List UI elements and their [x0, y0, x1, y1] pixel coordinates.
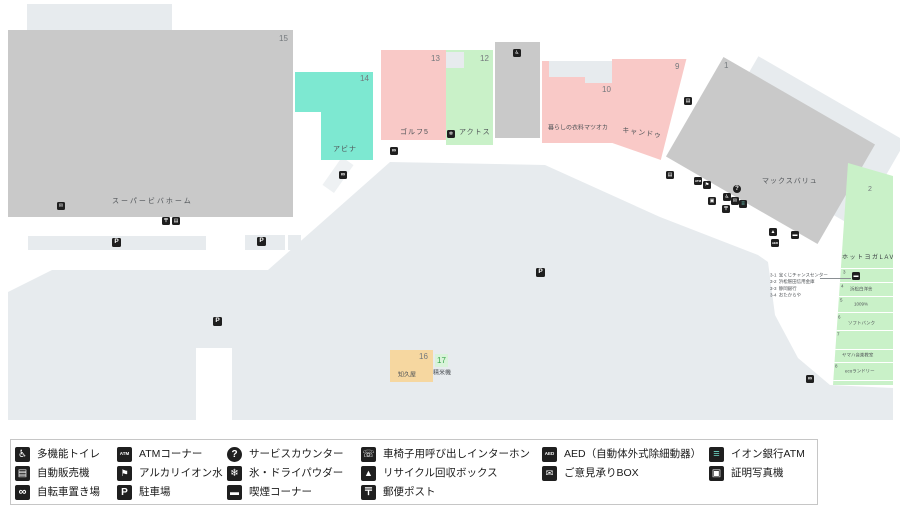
store-number: 9 [675, 63, 679, 71]
parking-icon: P [112, 238, 121, 247]
store-number: 14 [360, 75, 369, 83]
section-divider [832, 330, 893, 331]
vending-icon: ▤ [172, 217, 180, 225]
parking-icon: P [117, 485, 132, 500]
section-divider [832, 380, 893, 381]
atm-icon: ATM [694, 177, 702, 185]
legend-label: アルカリイオン水 [139, 466, 223, 481]
section-store-label: 1009% [854, 302, 868, 306]
parking-icon: P [257, 237, 266, 246]
section-store-label: 浜松白洋舎 [850, 287, 872, 291]
mall-floor-map: 15 スーパービバホーム 14 アビナ 13 ゴルフ5 12 アクトス 10 暮… [0, 0, 900, 510]
section-number: 3 [843, 270, 845, 274]
section-number: 7 [837, 332, 839, 336]
post-icon: 〒 [361, 485, 376, 500]
legend-label: ご意見承りBOX [564, 466, 639, 481]
parking-icon: P [536, 268, 545, 277]
notch-matsuoka-2 [585, 61, 612, 83]
store-number: 15 [279, 35, 288, 43]
store-label-matsuoka: 暮らしの衣料マツオカ [548, 125, 608, 131]
suggestion-box-icon: ✉ [731, 197, 739, 205]
tenant-number: 3-2 [770, 279, 776, 286]
ice-icon: ❄ [447, 130, 455, 138]
legend-label: 喫煙コーナー [249, 485, 312, 500]
store-number: 1 [724, 62, 728, 70]
section-store-label: ヤマハ音楽教室 [842, 353, 873, 357]
bicycle-icon: ∞ [390, 147, 398, 155]
bicycle-icon: ∞ [15, 485, 30, 500]
smoking-icon: ▬ [791, 231, 799, 239]
tenant-number: 3-1 [770, 272, 776, 279]
tenant-name: 宝くじチャンスセンター [779, 272, 828, 279]
legend-label: 自転車置き場 [37, 485, 100, 500]
legend-label: 車椅子用呼び出しインターホン [383, 447, 530, 462]
aeon-atm-icon: ≡ [739, 200, 747, 208]
store-label-actos: アクトス [459, 129, 491, 136]
tenant-list-item: 3-2浜松磐田信用金庫 [770, 279, 828, 286]
store-viva-home [8, 30, 293, 217]
store-number: 16 [419, 353, 428, 361]
parking-icon: P [213, 317, 222, 326]
tenant-list-item: 3-1宝くじチャンスセンター [770, 272, 828, 279]
aed-icon: AED [542, 447, 557, 462]
notch-actos [446, 52, 464, 68]
aeon-atm-icon: ≡ [709, 447, 724, 462]
post-icon: 〒 [722, 205, 730, 213]
area-top-left [27, 4, 172, 30]
toilet-icon: ♿ [15, 447, 30, 462]
alkaline-water-icon: ⚑ [117, 466, 132, 481]
store-label-seimaiki: 精米機 [433, 370, 451, 376]
intercom-icon: ☏ [361, 447, 376, 462]
store-seimaiki: 17 [435, 354, 448, 367]
tenant-name: おたからや [779, 292, 801, 299]
parking-notch [196, 348, 232, 420]
post-icon: 〒 [162, 217, 170, 225]
toilet-icon: ♿ [513, 49, 521, 57]
store-number: 17 [437, 356, 446, 365]
tenant-name: 浜松磐田信用金庫 [779, 279, 815, 286]
store-number: 10 [602, 86, 611, 94]
lottery-icon: ▬ [852, 272, 860, 280]
legend-label: 多機能トイレ [37, 447, 100, 462]
legend-label: AED（自動体外式除細動器） [564, 447, 701, 462]
crosswalk [323, 157, 354, 193]
notch-matsuoka-1 [549, 61, 585, 77]
suggestion-box-icon: ✉ [542, 466, 557, 481]
section-store-label: ecoランドリー [845, 369, 875, 373]
legend-label: 駐車場 [139, 485, 171, 500]
store-label-chikuya: 知久屋 [398, 372, 416, 378]
toilet-icon: ♿ [723, 193, 731, 201]
tenant-number: 3-4 [770, 292, 776, 299]
tenant-list-item: 3-3静岡銀行 [770, 285, 828, 292]
tenant-number: 3-3 [770, 285, 776, 292]
photo-icon: ▣ [708, 197, 716, 205]
section-number: 6 [838, 315, 840, 319]
recycle-icon: ▲ [769, 228, 777, 236]
store-label-lava: ホットヨガLAVA [842, 255, 900, 261]
section3-tenant-list: 3-1宝くじチャンスセンター3-2浜松磐田信用金庫3-3静岡銀行3-4おたからや [770, 272, 828, 299]
legend-label: 証明写真機 [731, 466, 784, 481]
tenant-list-item: 3-4おたからや [770, 292, 828, 299]
section-number: 5 [840, 298, 842, 302]
store-label-abina: アビナ [333, 146, 357, 153]
service-icon: ? [227, 447, 242, 462]
tenant-name: 静岡銀行 [779, 285, 797, 292]
service-icon: ? [733, 185, 741, 193]
legend-label: 郵便ポスト [383, 485, 436, 500]
photo-icon: ▣ [709, 466, 724, 481]
legend-label: 自動販売機 [37, 466, 90, 481]
section-divider [832, 268, 893, 269]
section-store-label: ソフトバンク [848, 321, 875, 325]
section-divider [832, 312, 893, 313]
vending-icon: ▤ [15, 466, 30, 481]
section-number: 4 [841, 284, 843, 288]
suggestion-box-icon: ✉ [57, 202, 65, 210]
section-divider [832, 362, 893, 363]
atm-icon: ATM [117, 447, 132, 462]
store-label-viva-home: スーパービバホーム [112, 198, 193, 205]
store-number: 2 [868, 186, 872, 193]
alkaline-water-icon: ⚑ [703, 181, 711, 189]
legend-label: サービスカウンター [249, 447, 344, 462]
legend-label: リサイクル回収ボックス [383, 466, 498, 481]
store-label-maxvalu: マックスバリュ [762, 178, 818, 185]
section-divider [832, 349, 893, 350]
vending-icon: ▤ [684, 97, 692, 105]
bicycle-icon: ∞ [339, 171, 347, 179]
vending-icon: ▤ [666, 171, 674, 179]
store-golf5 [381, 50, 446, 140]
aed-icon: AED [771, 239, 779, 247]
bicycle-icon: ∞ [806, 375, 814, 383]
store-number: 13 [431, 55, 440, 63]
smoking-icon: ▬ [227, 485, 242, 500]
legend-label: ATMコーナー [139, 447, 202, 462]
legend-label: イオン銀行ATM [731, 447, 805, 462]
store-label-golf5: ゴルフ5 [400, 129, 429, 136]
legend-label: 氷・ドライパウダー [249, 466, 343, 481]
section-number: 8 [835, 364, 837, 368]
store-number: 12 [480, 55, 489, 63]
recycle-icon: ▲ [361, 466, 376, 481]
legend: ♿多機能トイレ▤自動販売機∞自転車置き場ATMATMコーナー⚑アルカリイオン水P… [10, 439, 818, 505]
ice-icon: ❄ [227, 466, 242, 481]
